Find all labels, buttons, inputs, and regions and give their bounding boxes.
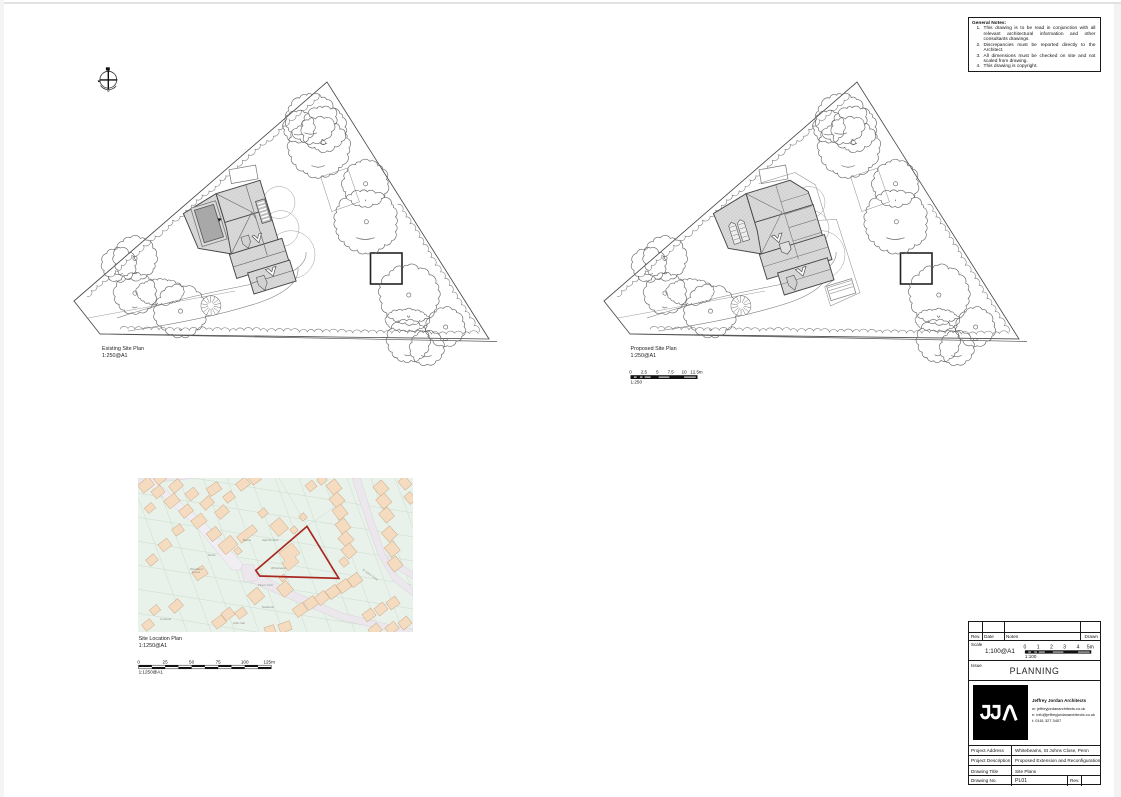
- svg-text:12.5m: 12.5m: [690, 370, 703, 375]
- svg-text:House: House: [192, 570, 201, 574]
- svg-text:0: 0: [629, 370, 632, 375]
- svg-text:Redlands: Redlands: [262, 605, 274, 609]
- svg-text:Barton: Barton: [243, 538, 252, 542]
- svg-text:Little Oak: Little Oak: [233, 621, 245, 625]
- svg-text:Lynwood: Lynwood: [160, 617, 172, 621]
- svg-text:Merlin: Merlin: [208, 553, 216, 557]
- svg-text:High Borders: High Borders: [262, 538, 279, 542]
- svg-text:7.5: 7.5: [668, 370, 675, 375]
- svg-text:125m: 125m: [263, 660, 275, 665]
- svg-text:Whitebeams: Whitebeams: [271, 566, 287, 570]
- svg-text:75: 75: [216, 660, 222, 665]
- svg-text:2.5: 2.5: [641, 370, 648, 375]
- svg-text:25: 25: [163, 660, 169, 665]
- svg-text:5: 5: [656, 370, 659, 375]
- svg-text:0: 0: [137, 660, 140, 665]
- svg-text:Pipers Croft: Pipers Croft: [258, 583, 273, 587]
- svg-text:100: 100: [241, 660, 249, 665]
- svg-text:10: 10: [682, 370, 687, 375]
- svg-text:1:250: 1:250: [631, 380, 643, 385]
- svg-text:1:1250@A1: 1:1250@A1: [139, 670, 164, 675]
- svg-text:50: 50: [189, 660, 195, 665]
